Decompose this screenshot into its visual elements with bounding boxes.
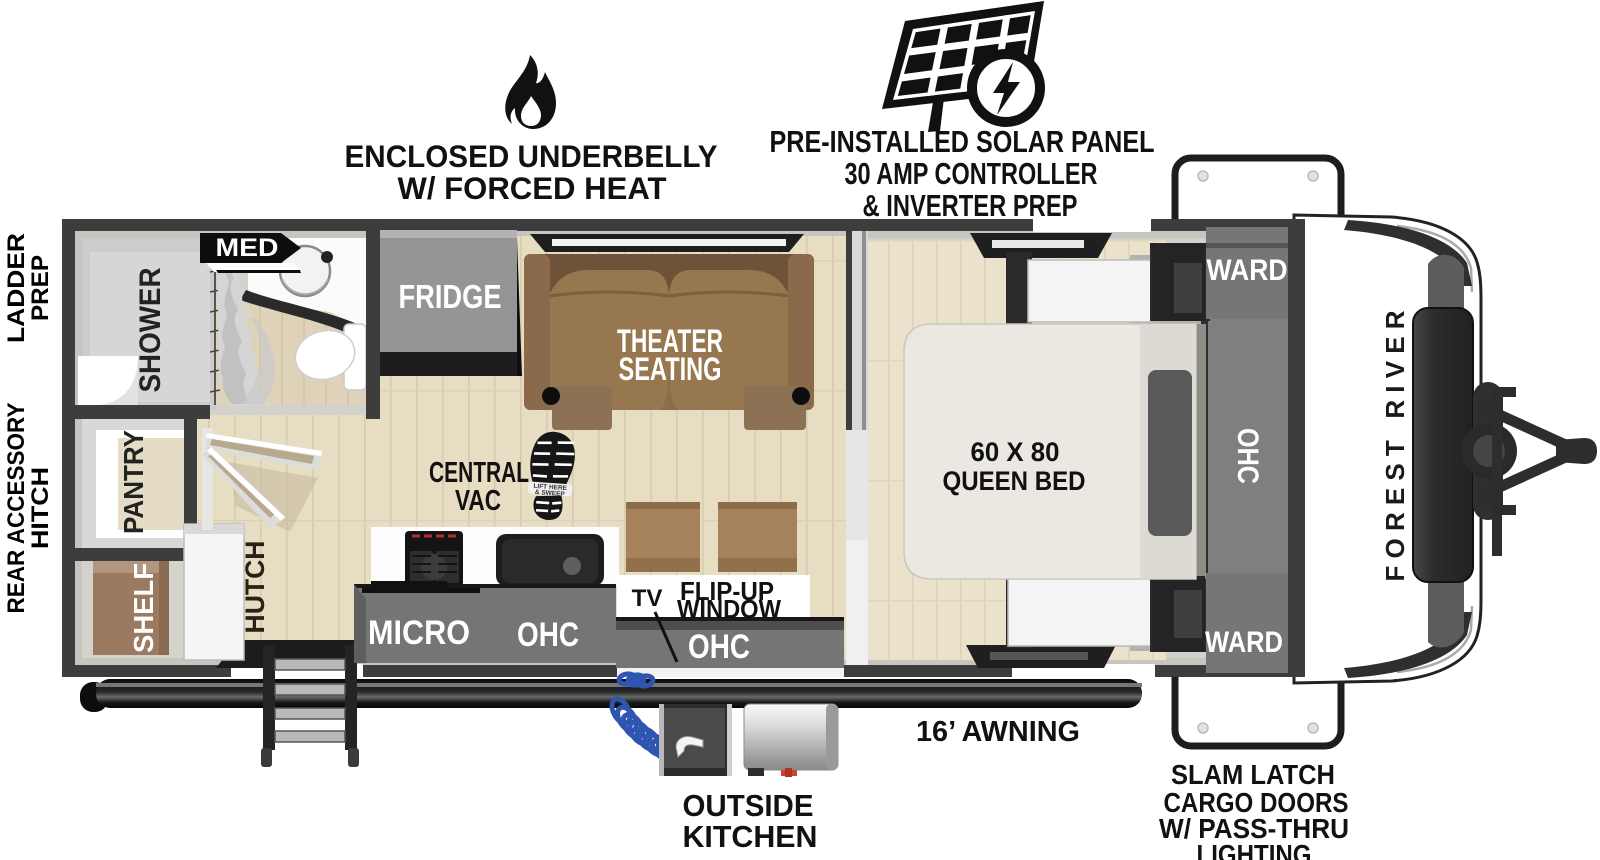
svg-text:PREP: PREP [27,255,54,321]
svg-text:LIGHTING: LIGHTING [1197,839,1312,860]
svg-text:WARD: WARD [1205,626,1283,659]
svg-text:SEATING: SEATING [619,351,722,387]
svg-text:HITCH: HITCH [27,467,54,549]
svg-text:SHELF: SHELF [128,563,159,653]
svg-text:16’ AWNING: 16’ AWNING [916,716,1080,748]
svg-text:OHC: OHC [517,616,579,654]
svg-text:MICRO: MICRO [368,614,470,652]
svg-text:WINDOW: WINDOW [677,594,781,624]
svg-text:& INVERTER PREP: & INVERTER PREP [863,188,1078,223]
svg-text:OHC: OHC [1231,428,1264,484]
svg-text:QUEEN BED: QUEEN BED [943,466,1086,496]
svg-text:W/ FORCED HEAT: W/ FORCED HEAT [398,170,667,206]
svg-text:HUTCH: HUTCH [240,541,270,634]
svg-text:REAR ACCESSORY: REAR ACCESSORY [3,403,30,614]
svg-text:VAC: VAC [455,485,501,517]
svg-text:KITCHEN: KITCHEN [683,819,818,854]
svg-text:OHC: OHC [688,628,750,666]
svg-text:SHOWER: SHOWER [134,267,167,392]
svg-text:FRIDGE: FRIDGE [399,278,502,315]
svg-text:PANTRY: PANTRY [118,430,149,534]
svg-text:FOREST RIVER: FOREST RIVER [1380,305,1410,582]
svg-text:MED: MED [216,234,279,262]
svg-text:OUTSIDE: OUTSIDE [683,788,814,823]
svg-text:PRE-INSTALLED SOLAR PANEL: PRE-INSTALLED SOLAR PANEL [770,124,1155,159]
svg-text:60 X 80: 60 X 80 [971,437,1060,467]
svg-text:ENCLOSED UNDERBELLY: ENCLOSED UNDERBELLY [345,138,718,174]
svg-text:SLAM LATCH: SLAM LATCH [1171,759,1335,790]
svg-text:TV: TV [632,585,663,612]
svg-text:LADDER: LADDER [3,233,30,343]
svg-text:WARD: WARD [1207,254,1288,287]
svg-text:30 AMP CONTROLLER: 30 AMP CONTROLLER [845,156,1098,191]
